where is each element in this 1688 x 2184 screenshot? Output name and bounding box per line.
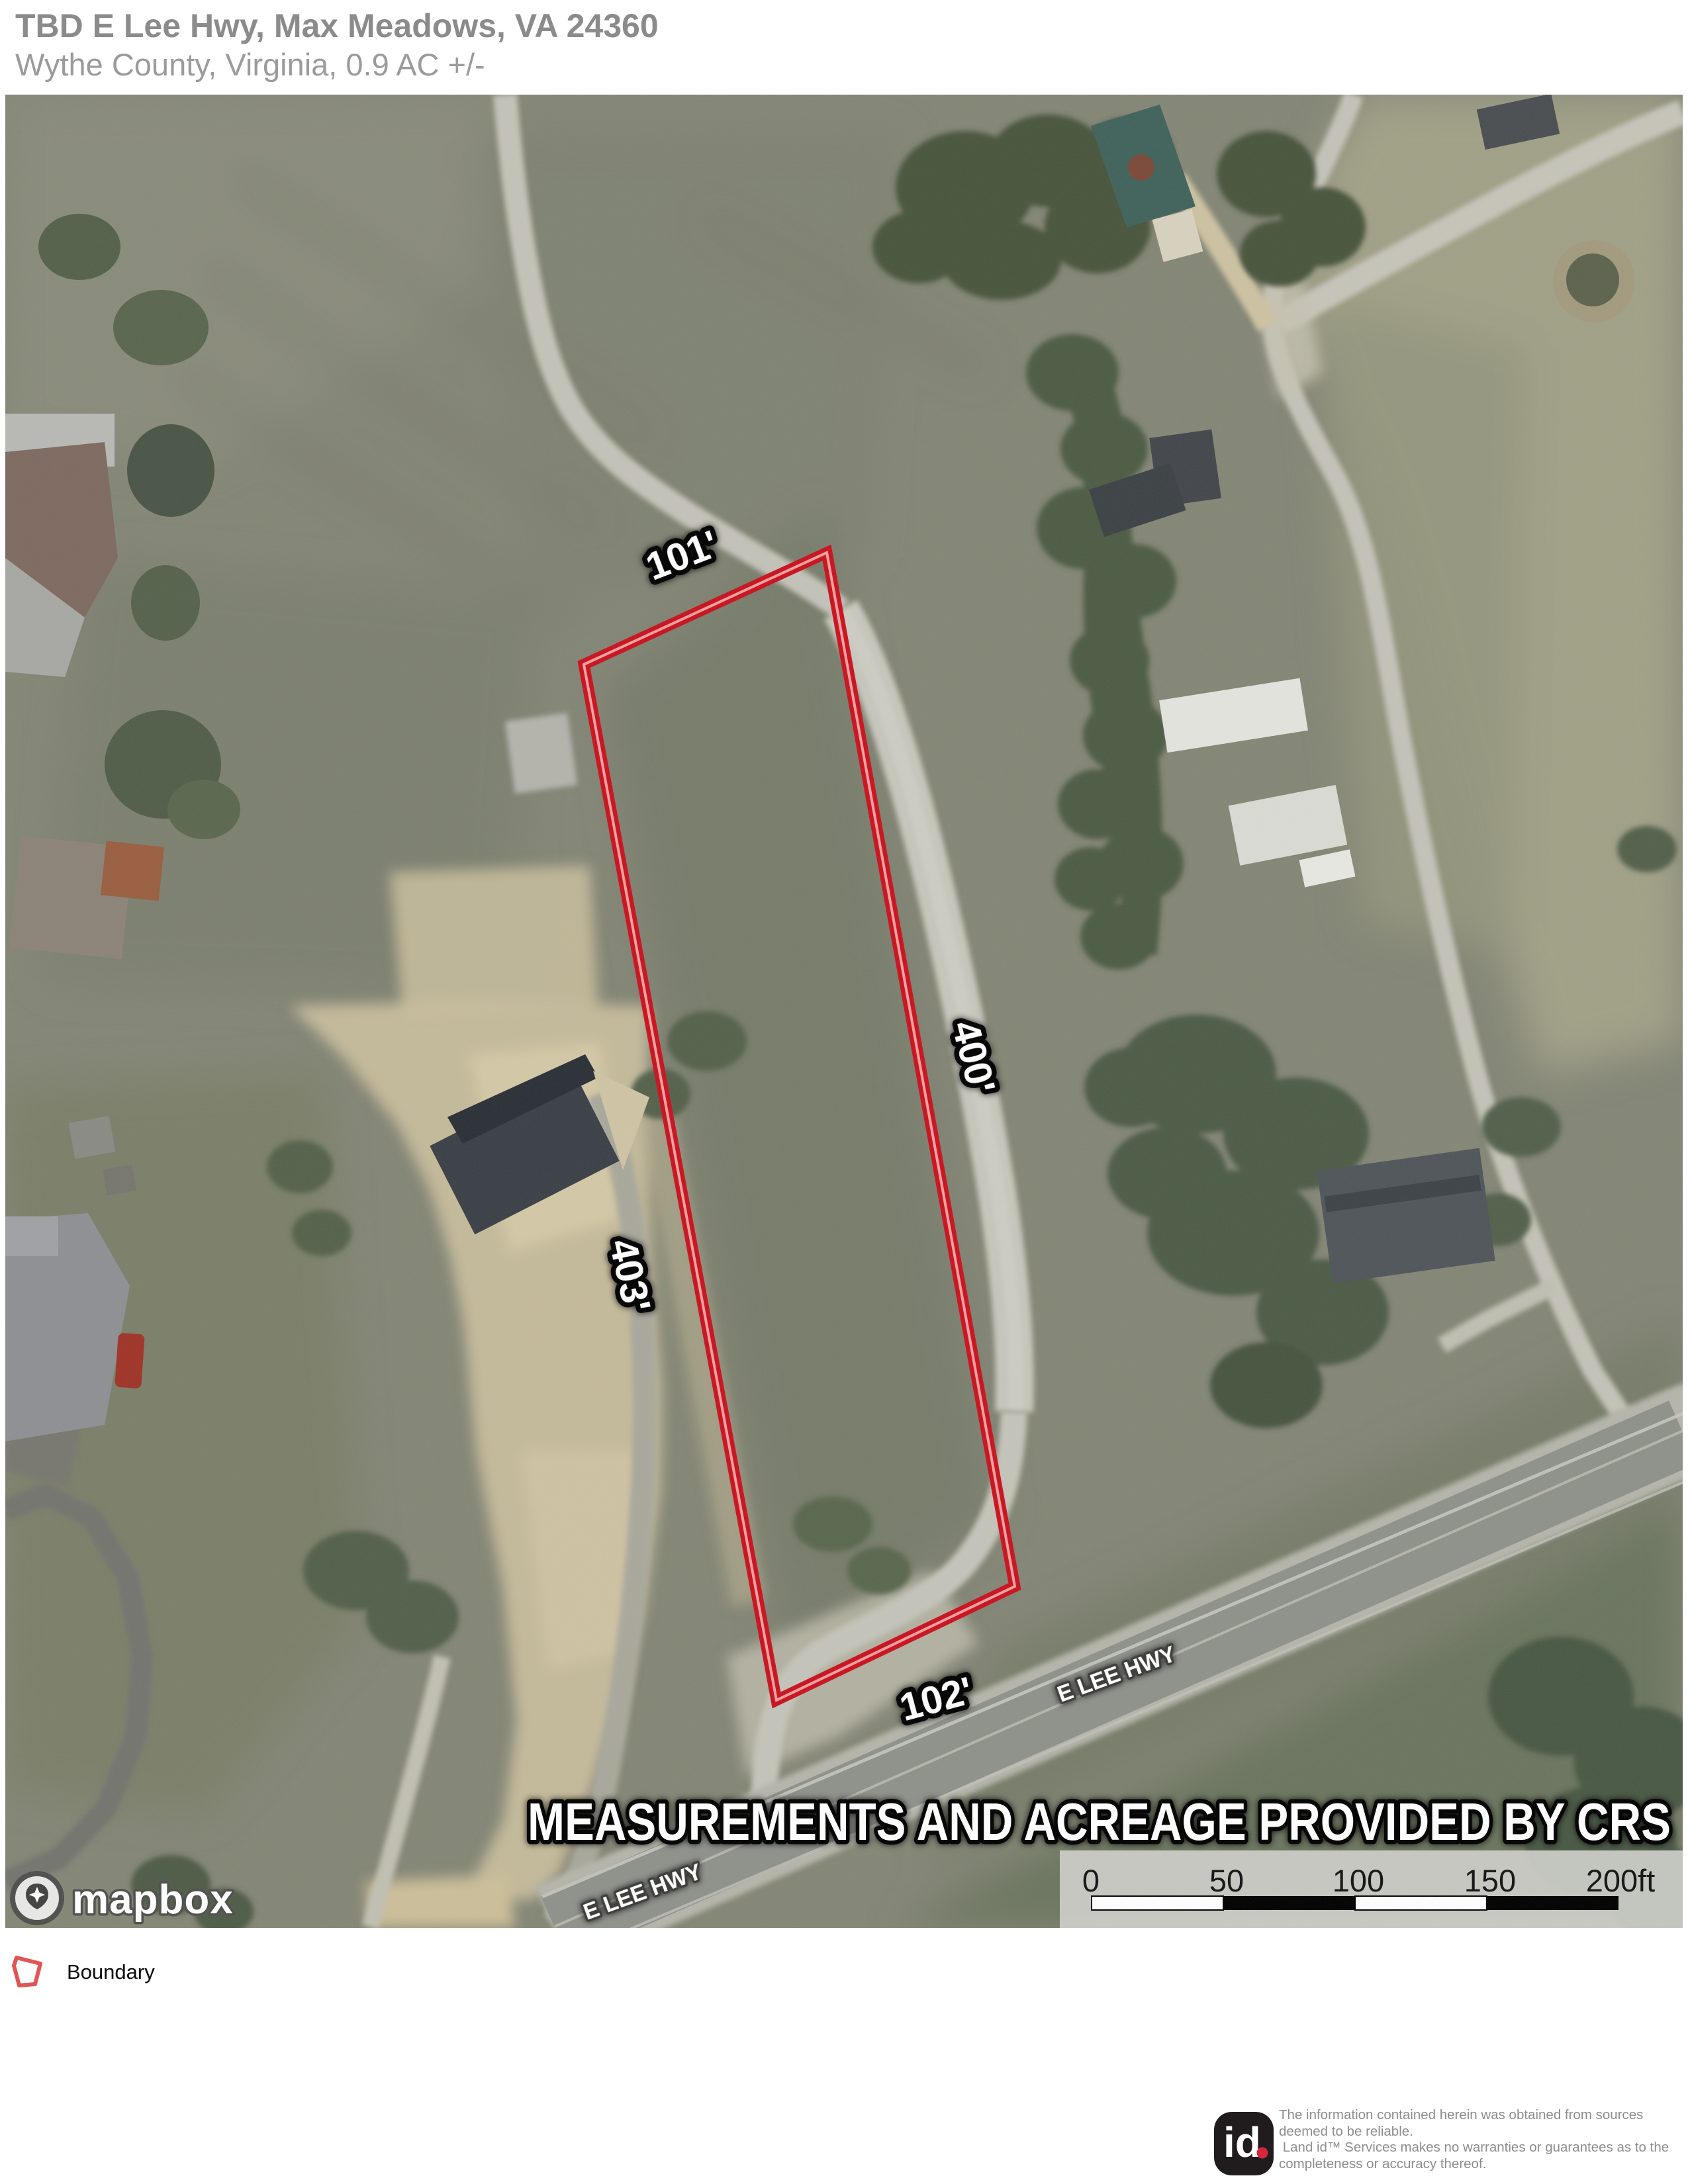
svg-text:id: id xyxy=(1223,2118,1261,2166)
